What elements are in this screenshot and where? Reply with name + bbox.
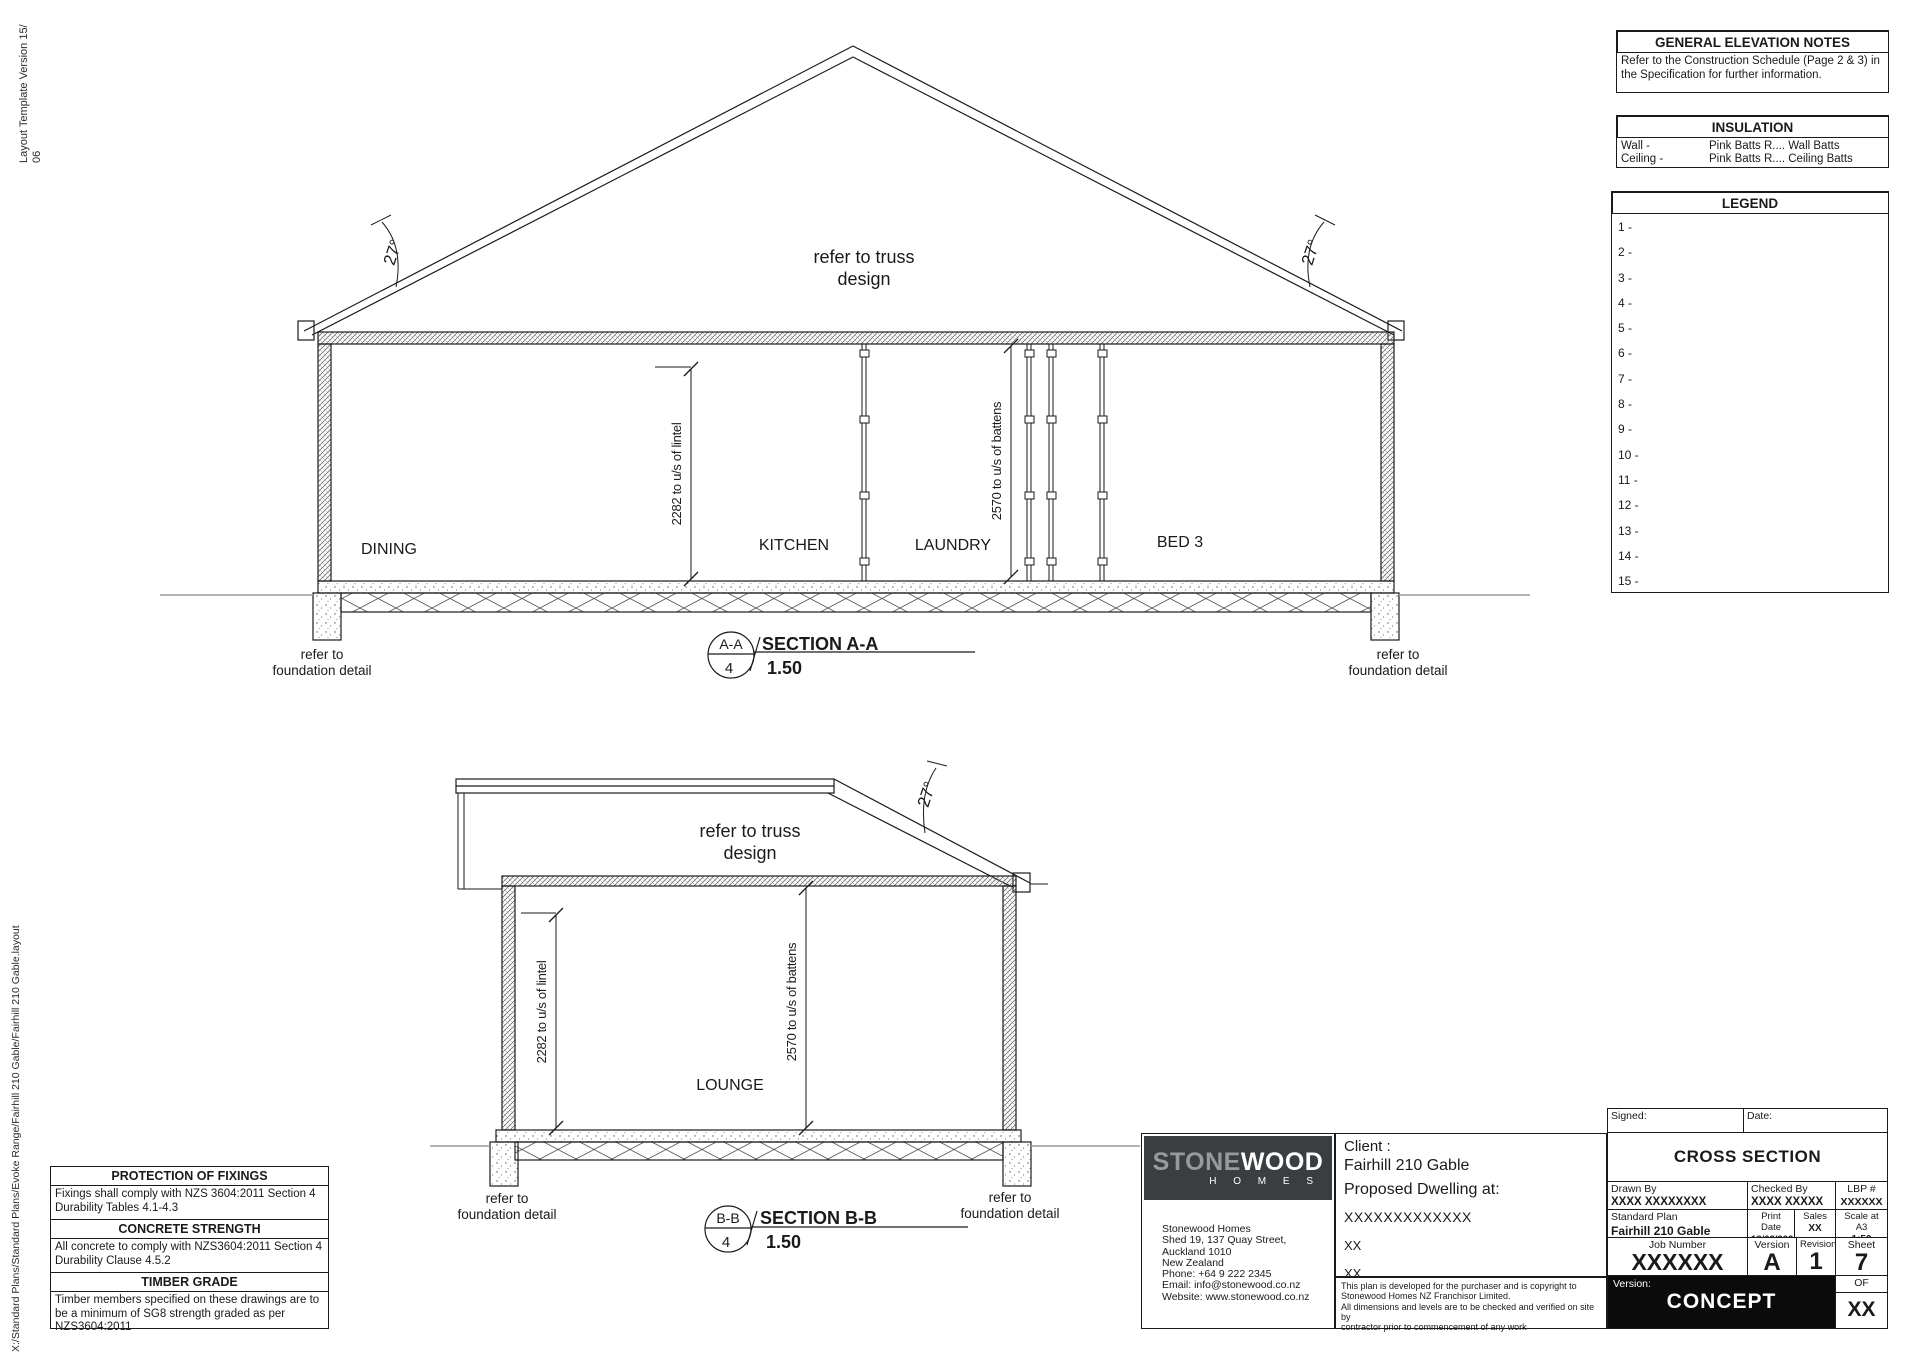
section-a-ceiling	[318, 332, 1394, 344]
section-b-dim-battens: 2570 to u/s of battens	[784, 881, 813, 1135]
section-a-roof	[298, 46, 1404, 340]
revision-value: 1	[1797, 1251, 1835, 1272]
disclaimer-cell: This plan is developed for the purchaser…	[1335, 1277, 1607, 1329]
legend-item: 9 -	[1612, 417, 1888, 442]
protection-of-fixings-title: PROTECTION OF FIXINGS	[51, 1167, 328, 1186]
brand-stone-text: STONE	[1153, 1148, 1241, 1176]
truss-note-b-line1: refer to truss	[699, 821, 800, 841]
section-b-drawing: 2282 to u/s of lintel 2570 to u/s of bat…	[430, 761, 1140, 1252]
dim-lintel-label-a: 2282 to u/s of lintel	[669, 422, 684, 525]
legend-title: LEGEND	[1612, 192, 1889, 214]
dim-battens-label-a: 2570 to u/s of battens	[989, 401, 1004, 520]
section-a-pitch-left: 27°	[371, 215, 406, 287]
insulation-wall-label: Wall -	[1621, 140, 1709, 153]
legend-item: 13 -	[1612, 519, 1888, 544]
legend-item: 1 -	[1612, 215, 1888, 240]
drawn-by-cell: Drawn By XXXX XXXXXXXX	[1607, 1181, 1748, 1210]
callout-ref-a: A-A	[719, 636, 743, 652]
section-b-scale: 1.50	[766, 1232, 801, 1252]
section-b-ceiling	[502, 876, 1016, 886]
standard-plan-value: Fairhill 210 Gable	[1608, 1224, 1747, 1238]
foundation-note-b-right-1: refer to	[989, 1190, 1032, 1205]
checked-by-value: XXXX XXXXX	[1748, 1196, 1835, 1208]
company-address: Stonewood Homes Shed 19, 137 Quay Street…	[1162, 1224, 1334, 1303]
general-elevation-notes-panel: GENERAL ELEVATION NOTES Refer to the Con…	[1616, 30, 1889, 93]
scale-cell: Scale at A3 1:50	[1835, 1209, 1888, 1238]
client-name: Fairhill 210 Gable	[1344, 1157, 1598, 1175]
sheet-value: 7	[1836, 1252, 1887, 1273]
print-date-label: Print Date	[1748, 1210, 1794, 1234]
section-a-title: SECTION A-A	[762, 634, 878, 654]
truss-note-b-line2: design	[723, 843, 776, 863]
dim-lintel-label-b: 2282 to u/s of lintel	[534, 960, 549, 1063]
job-number-cell: Job Number XXXXXX	[1607, 1237, 1748, 1276]
concrete-strength-title: CONCRETE STRENGTH	[51, 1219, 328, 1239]
layout-template-version-note: Layout Template Version 15/ 06	[18, 24, 44, 163]
checked-by-label: Checked By	[1748, 1182, 1835, 1196]
section-a-dim-battens: 2570 to u/s of battens	[989, 339, 1018, 584]
stonewood-wordmark: STONEWOOD	[1144, 1149, 1332, 1175]
foundation-note-a-right-2: foundation detail	[1348, 663, 1447, 678]
foundation-note-a-right-1: refer to	[1377, 647, 1420, 662]
version-banner: Version: CONCEPT	[1607, 1275, 1836, 1329]
brand-homes-text: H O M E S	[1144, 1176, 1332, 1187]
date-field: Date:	[1743, 1108, 1888, 1133]
room-label-lounge: LOUNGE	[696, 1077, 764, 1094]
legend-item: 5 -	[1612, 316, 1888, 341]
pitch-angle-label: 27°	[380, 237, 406, 267]
room-label-laundry: LAUNDRY	[915, 537, 992, 554]
general-elevation-notes-title: GENERAL ELEVATION NOTES	[1617, 31, 1889, 53]
section-b-wall-right	[1003, 886, 1016, 1130]
timber-grade-title: TIMBER GRADE	[51, 1272, 328, 1292]
stonewood-logo: STONEWOOD H O M E S	[1144, 1136, 1332, 1200]
legend-item: 4 -	[1612, 291, 1888, 316]
sales-value: XX	[1795, 1223, 1835, 1234]
of-value: XX	[1835, 1292, 1888, 1329]
room-label-kitchen: KITCHEN	[759, 537, 829, 554]
file-path-note: X:/Standard Plans/Standard Plans/Evoke R…	[10, 925, 23, 1352]
company-cell: STONEWOOD H O M E S Stonewood Homes Shed…	[1141, 1133, 1335, 1329]
foundation-note-a-left-1: refer to	[301, 647, 344, 662]
sales-cell: Sales XX	[1794, 1209, 1836, 1238]
revision-cell: Revision 1	[1796, 1237, 1836, 1276]
foundation-note-a-left-2: foundation detail	[272, 663, 371, 678]
callout-ref-b: B-B	[716, 1210, 739, 1226]
callout-sheet-a: 4	[725, 660, 733, 677]
timber-grade-body: Timber members specified on these drawin…	[51, 1292, 328, 1339]
legend-item: 6 -	[1612, 341, 1888, 366]
insulation-title: INSULATION	[1617, 116, 1889, 138]
dim-battens-label-b: 2570 to u/s of battens	[784, 942, 799, 1061]
legend-item: 10 -	[1612, 443, 1888, 468]
insulation-row-wall: Wall - Pink Batts R.... Wall Batts	[1617, 140, 1888, 153]
section-b-pitch: 27°	[914, 761, 947, 833]
sheet-title: CROSS SECTION	[1607, 1132, 1888, 1182]
lbp-label: LBP #	[1836, 1182, 1887, 1196]
callout-sheet-b: 4	[722, 1234, 730, 1251]
general-elevation-notes-body: Refer to the Construction Schedule (Page…	[1617, 52, 1888, 85]
room-label-bed3: BED 3	[1157, 534, 1203, 551]
section-b-title: SECTION B-B	[760, 1208, 877, 1228]
lbp-cell: LBP # XXXXXX	[1835, 1181, 1888, 1210]
section-a-callout: A-A 4 SECTION A-A 1.50	[708, 632, 975, 678]
client-address-placeholder: XX	[1344, 1238, 1598, 1253]
checked-by-cell: Checked By XXXX XXXXX	[1747, 1181, 1836, 1210]
legend-item: 2 -	[1612, 240, 1888, 265]
pitch-angle-label: 27°	[1298, 237, 1324, 267]
truss-note-a-line1: refer to truss	[813, 247, 914, 267]
legend-panel: LEGEND 1 - 2 - 3 - 4 - 5 - 6 - 7 - 8 - 9…	[1611, 191, 1889, 593]
standard-plan-cell: Standard Plan Fairhill 210 Gable	[1607, 1209, 1748, 1238]
pitch-angle-label: 27°	[914, 779, 940, 809]
section-a-pitch-right: 27°	[1298, 215, 1335, 287]
title-block: STONEWOOD H O M E S Stonewood Homes Shed…	[1141, 1108, 1888, 1329]
truss-note-a-line2: design	[837, 269, 890, 289]
section-b-dim-lintel: 2282 to u/s of lintel	[521, 908, 563, 1135]
foundation-note-b-left-2: foundation detail	[457, 1207, 556, 1222]
title-block-right: Signed: Date: CROSS SECTION Drawn By XXX…	[1607, 1108, 1888, 1329]
insulation-row-ceiling: Ceiling - Pink Batts R.... Ceiling Batts	[1617, 153, 1888, 166]
version-value: A	[1748, 1252, 1796, 1273]
legend-item: 14 -	[1612, 544, 1888, 569]
legend-item: 11 -	[1612, 468, 1888, 493]
section-a-wall-right	[1381, 344, 1394, 581]
legend-item: 3 -	[1612, 266, 1888, 291]
concrete-strength-body: All concrete to comply with NZS3604:2011…	[51, 1239, 328, 1272]
section-a-wall-left	[318, 344, 331, 581]
section-b-foundation	[430, 1130, 1140, 1186]
client-subtitle: Proposed Dwelling at:	[1344, 1181, 1598, 1199]
room-label-dining: DINING	[361, 541, 417, 558]
client-cell: Client : Fairhill 210 Gable Proposed Dwe…	[1335, 1133, 1607, 1277]
version-cell: Version A	[1747, 1237, 1797, 1276]
sheet-cell: Sheet 7	[1835, 1237, 1888, 1276]
insulation-ceiling-value: Pink Batts R.... Ceiling Batts	[1709, 153, 1853, 166]
lbp-value: XXXXXX	[1836, 1196, 1887, 1208]
address-line: Website: www.stonewood.co.nz	[1162, 1292, 1334, 1303]
foundation-note-b-left-1: refer to	[486, 1191, 529, 1206]
insulation-wall-value: Pink Batts R.... Wall Batts	[1709, 140, 1840, 153]
construction-notes-panel: PROTECTION OF FIXINGS Fixings shall comp…	[50, 1166, 329, 1329]
insulation-ceiling-label: Ceiling -	[1621, 153, 1709, 166]
section-a-dim-lintel: 2282 to u/s of lintel	[655, 362, 698, 586]
print-date-cell: Print Date 18/08/2020	[1747, 1209, 1795, 1238]
section-a-scale: 1.50	[767, 658, 802, 678]
section-b-wall-left	[502, 886, 515, 1130]
legend-item: 12 -	[1612, 493, 1888, 518]
version-banner-label: Version:	[1610, 1277, 1654, 1291]
foundation-note-b-right-2: foundation detail	[960, 1206, 1059, 1221]
section-b-callout: B-B 4 SECTION B-B 1.50	[705, 1206, 968, 1252]
scale-label: Scale at A3	[1836, 1210, 1887, 1234]
section-a-drawing: 2282 to u/s of lintel 2570 to u/s of bat…	[160, 46, 1530, 678]
protection-of-fixings-body: Fixings shall comply with NZS 3604:2011 …	[51, 1186, 328, 1219]
drawn-by-value: XXXX XXXXXXXX	[1608, 1196, 1747, 1208]
section-a-foundation	[160, 581, 1530, 640]
drawing-sheet: 2282 to u/s of lintel 2570 to u/s of bat…	[0, 0, 1920, 1358]
signed-field: Signed:	[1607, 1108, 1744, 1133]
legend-item: 7 -	[1612, 367, 1888, 392]
job-number-value: XXXXXX	[1608, 1252, 1747, 1273]
legend-item: 15 -	[1612, 569, 1888, 594]
client-label: Client :	[1344, 1138, 1598, 1155]
address-line: Shed 19, 137 Quay Street,	[1162, 1235, 1334, 1246]
legend-item: 8 -	[1612, 392, 1888, 417]
sales-label: Sales	[1795, 1210, 1835, 1223]
of-label: OF	[1835, 1275, 1888, 1293]
drawn-by-label: Drawn By	[1608, 1182, 1747, 1196]
client-address-placeholder: XXXXXXXXXXXXX	[1344, 1209, 1598, 1225]
insulation-panel: INSULATION Wall - Pink Batts R.... Wall …	[1616, 115, 1889, 168]
brand-wood-text: WOOD	[1241, 1148, 1324, 1176]
standard-plan-label: Standard Plan	[1608, 1210, 1747, 1224]
